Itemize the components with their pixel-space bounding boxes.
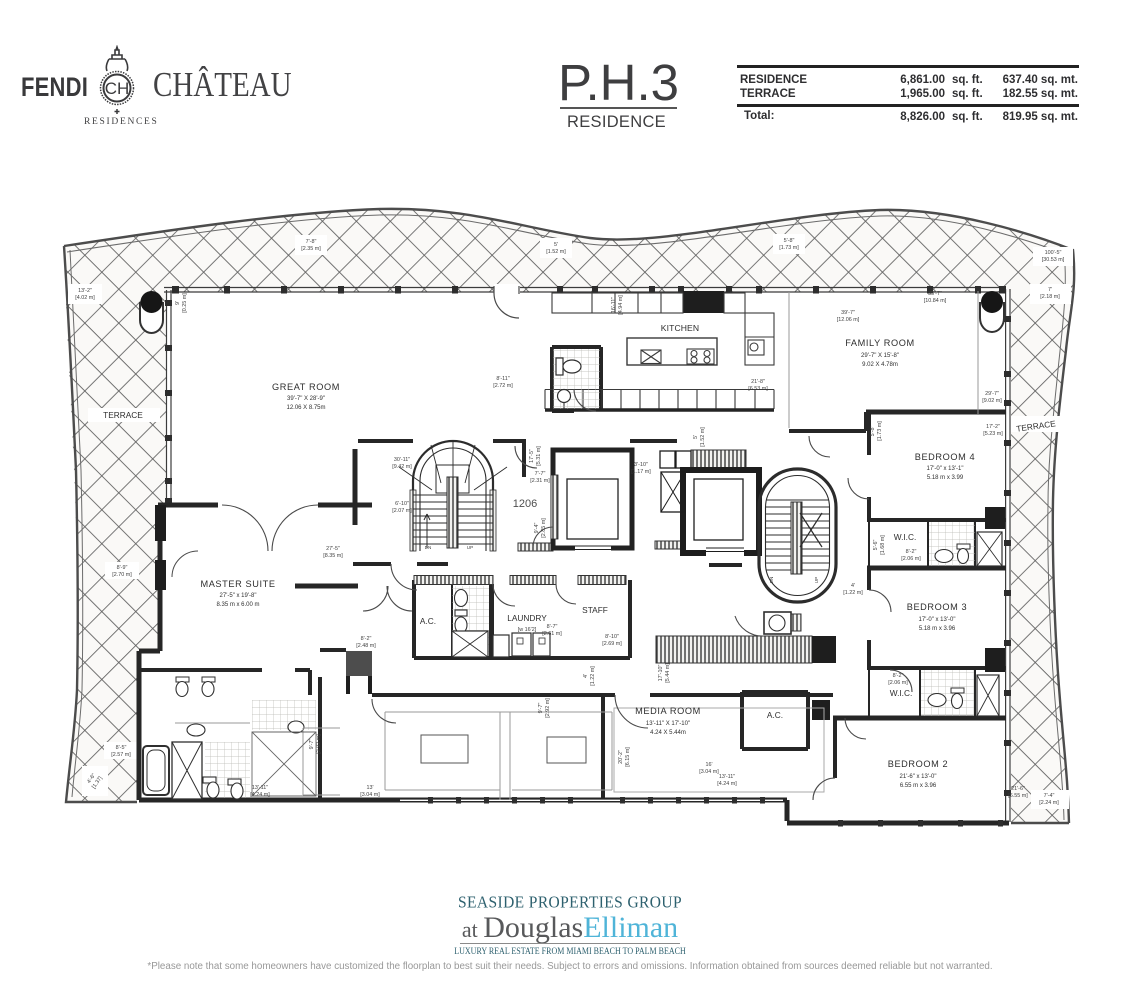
svg-text:16'-11"[4.94 m]: 16'-11"[4.94 m] bbox=[611, 295, 624, 315]
svg-text:[5.23 m]: [5.23 m] bbox=[983, 431, 1003, 437]
svg-text:35'-7": 35'-7" bbox=[928, 291, 942, 297]
svg-text:STAFF: STAFF bbox=[582, 605, 608, 615]
svg-text:W.I.C.: W.I.C. bbox=[894, 532, 917, 542]
svg-text:[4.24 m]: [4.24 m] bbox=[250, 792, 270, 798]
svg-text:8'-7": 8'-7" bbox=[547, 624, 558, 630]
svg-text:4'[1.22 m]: 4'[1.22 m] bbox=[583, 666, 596, 686]
svg-text:17'-0" x 13'-1": 17'-0" x 13'-1" bbox=[927, 466, 964, 472]
svg-text:3'-10": 3'-10" bbox=[634, 462, 648, 468]
svg-text:20'-2"[6.15 m]: 20'-2"[6.15 m] bbox=[618, 747, 631, 767]
svg-text:6'-10": 6'-10" bbox=[395, 501, 409, 507]
svg-text:[w 16'2]: [w 16'2] bbox=[518, 627, 537, 633]
svg-text:27'-5"[8.35 m]: 27'-5"[8.35 m] bbox=[323, 546, 343, 559]
svg-text:4.24 X 5.44m: 4.24 X 5.44m bbox=[650, 730, 686, 736]
svg-text:6.55 m x 3.96: 6.55 m x 3.96 bbox=[900, 783, 937, 789]
svg-text:BEDROOM 4: BEDROOM 4 bbox=[915, 452, 976, 462]
svg-text:[2.35 m]: [2.35 m] bbox=[301, 246, 321, 252]
svg-text:13'-2": 13'-2" bbox=[78, 288, 92, 294]
svg-text:FAMILY ROOM: FAMILY ROOM bbox=[845, 338, 915, 348]
svg-text:A.C.: A.C. bbox=[420, 616, 436, 626]
svg-text:[2.24 m]: [2.24 m] bbox=[1039, 800, 1059, 806]
svg-text:KITCHEN: KITCHEN bbox=[661, 323, 699, 333]
svg-text:MASTER SUITE: MASTER SUITE bbox=[200, 579, 275, 589]
svg-text:29'-7": 29'-7" bbox=[985, 391, 999, 397]
svg-text:39'-7": 39'-7" bbox=[841, 310, 855, 316]
svg-text:1206: 1206 bbox=[513, 498, 537, 510]
svg-text:BEDROOM 3: BEDROOM 3 bbox=[907, 602, 968, 612]
svg-text:13': 13' bbox=[366, 785, 373, 791]
svg-text:8.35 m x 6.00 m: 8.35 m x 6.00 m bbox=[216, 602, 259, 608]
svg-text:[2.31 m]: [2.31 m] bbox=[530, 478, 550, 484]
svg-text:21'-6" x 13'-0": 21'-6" x 13'-0" bbox=[900, 774, 937, 780]
svg-text:8'-2": 8'-2" bbox=[906, 549, 917, 555]
svg-text:[1.17 m]: [1.17 m] bbox=[631, 469, 651, 475]
svg-text:39'-7" X 28'-9": 39'-7" X 28'-9" bbox=[287, 396, 325, 402]
svg-text:[2.72 m]: [2.72 m] bbox=[493, 383, 513, 389]
svg-text:GREAT ROOM: GREAT ROOM bbox=[272, 382, 340, 392]
svg-text:8'-10": 8'-10" bbox=[605, 634, 619, 640]
svg-text:29'-7" X 15'-8": 29'-7" X 15'-8" bbox=[861, 353, 899, 359]
svg-text:[4.24 m]: [4.24 m] bbox=[717, 781, 737, 787]
svg-text:5'-8"[1.73 m]: 5'-8"[1.73 m] bbox=[870, 421, 883, 441]
svg-text:[2.18 m]: [2.18 m] bbox=[1040, 294, 1060, 300]
svg-text:17'-10"[5.44 m]: 17'-10"[5.44 m] bbox=[658, 663, 671, 683]
svg-text:21'-8": 21'-8" bbox=[751, 379, 765, 385]
svg-text:[2.06 m]: [2.06 m] bbox=[901, 556, 921, 562]
svg-text:[1.73 m]: [1.73 m] bbox=[779, 245, 799, 251]
svg-text:DN: DN bbox=[769, 577, 774, 584]
svg-text:[3.04 m]: [3.04 m] bbox=[699, 769, 719, 775]
svg-text:17'-2": 17'-2" bbox=[986, 424, 1000, 430]
svg-text:[9.02 m]: [9.02 m] bbox=[982, 398, 1002, 404]
svg-text:8'-2": 8'-2" bbox=[361, 636, 372, 642]
svg-text:5.18 m x 3.96: 5.18 m x 3.96 bbox=[919, 626, 956, 632]
svg-text:13'-11": 13'-11" bbox=[719, 774, 735, 780]
svg-text:5.18 m x 3.99: 5.18 m x 3.99 bbox=[927, 475, 964, 481]
svg-text:5'[1.52 m]: 5'[1.52 m] bbox=[693, 427, 706, 447]
svg-text:8'-2": 8'-2" bbox=[893, 673, 904, 679]
svg-text:9'-4"[2.85 m]: 9'-4"[2.85 m] bbox=[534, 518, 547, 538]
svg-text:8'-5": 8'-5" bbox=[116, 745, 127, 751]
svg-text:[2.57 m]: [2.57 m] bbox=[111, 752, 131, 758]
svg-text:[9.42 m]: [9.42 m] bbox=[392, 464, 412, 470]
svg-text:5': 5' bbox=[554, 242, 558, 248]
svg-text:LAUNDRY: LAUNDRY bbox=[507, 613, 547, 623]
svg-text:[30.53 m]: [30.53 m] bbox=[1042, 257, 1065, 263]
svg-text:A.C.: A.C. bbox=[767, 710, 783, 720]
svg-text:[2.69 m]: [2.69 m] bbox=[602, 641, 622, 647]
svg-text:21'-6": 21'-6" bbox=[1011, 786, 1025, 792]
svg-text:[3.04 m]: [3.04 m] bbox=[360, 792, 380, 798]
svg-text:4': 4' bbox=[851, 583, 855, 589]
svg-text:[2.06 m]: [2.06 m] bbox=[888, 680, 908, 686]
svg-text:[2.48 m]: [2.48 m] bbox=[356, 643, 376, 649]
svg-text:13'-11" X 17'-10": 13'-11" X 17'-10" bbox=[646, 721, 690, 727]
svg-text:5'-8": 5'-8" bbox=[784, 238, 795, 244]
svg-text:9.02 X 4.78m: 9.02 X 4.78m bbox=[862, 362, 898, 368]
svg-text:[6.53 m]: [6.53 m] bbox=[748, 386, 768, 392]
svg-text:100'-5": 100'-5" bbox=[1045, 250, 1062, 256]
svg-text:30'-11": 30'-11" bbox=[394, 457, 410, 463]
svg-text:[2.61 m]: [2.61 m] bbox=[542, 631, 562, 637]
svg-text:[1.52 m]: [1.52 m] bbox=[546, 249, 566, 255]
svg-text:7': 7' bbox=[1048, 287, 1052, 293]
svg-text:7'-7": 7'-7" bbox=[535, 471, 546, 477]
svg-text:[12.06 m]: [12.06 m] bbox=[837, 317, 860, 323]
svg-text:[2.07 m]: [2.07 m] bbox=[392, 508, 412, 514]
svg-text:12.06 X 8.75m: 12.06 X 8.75m bbox=[286, 405, 325, 411]
svg-text:7'-4": 7'-4" bbox=[1044, 793, 1055, 799]
svg-text:17'-0" x 13'-0": 17'-0" x 13'-0" bbox=[919, 617, 956, 623]
svg-text:17'-5"[5.31 m]: 17'-5"[5.31 m] bbox=[529, 446, 542, 466]
svg-text:9'[0.25 m]: 9'[0.25 m] bbox=[175, 293, 188, 313]
svg-text:DN: DN bbox=[425, 545, 432, 550]
svg-text:16': 16' bbox=[705, 762, 712, 768]
svg-text:[10.84 m]: [10.84 m] bbox=[924, 298, 947, 304]
svg-text:7'-8": 7'-8" bbox=[306, 239, 317, 245]
svg-text:[1.22 m]: [1.22 m] bbox=[843, 590, 863, 596]
svg-text:8'-11": 8'-11" bbox=[496, 376, 509, 382]
svg-text:W.I.C.: W.I.C. bbox=[890, 688, 913, 698]
svg-text:[6.55 m]: [6.55 m] bbox=[1008, 793, 1028, 799]
svg-text:13'-11": 13'-11" bbox=[252, 785, 268, 791]
svg-text:MEDIA ROOM: MEDIA ROOM bbox=[635, 706, 701, 716]
svg-text:[2.70 m]: [2.70 m] bbox=[112, 572, 132, 578]
svg-text:8'-9": 8'-9" bbox=[117, 565, 128, 571]
svg-text:BEDROOM 2: BEDROOM 2 bbox=[888, 759, 949, 769]
svg-text:UP: UP bbox=[467, 545, 473, 550]
svg-text:5'-6"[1.68 m]: 5'-6"[1.68 m] bbox=[873, 535, 886, 555]
svg-text:27'-5" x 19'-8": 27'-5" x 19'-8" bbox=[220, 593, 257, 599]
svg-text:[4.02 m]: [4.02 m] bbox=[75, 295, 95, 301]
svg-text:9'-7"[2.92 m]: 9'-7"[2.92 m] bbox=[538, 698, 551, 718]
svg-text:UP: UP bbox=[814, 577, 819, 583]
svg-text:TERRACE: TERRACE bbox=[103, 410, 143, 420]
